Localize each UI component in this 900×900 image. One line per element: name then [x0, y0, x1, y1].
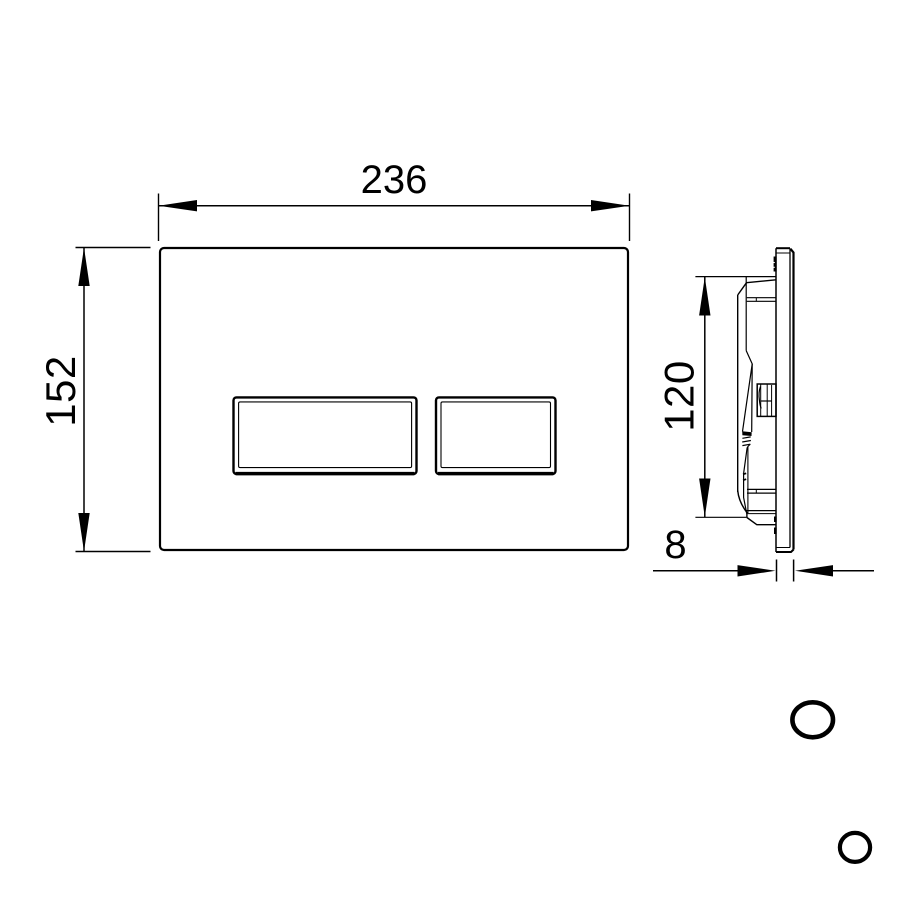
svg-text:120: 120: [656, 360, 703, 432]
svg-text:152: 152: [37, 355, 84, 427]
svg-text:236: 236: [361, 158, 428, 202]
svg-text:8: 8: [664, 523, 686, 567]
